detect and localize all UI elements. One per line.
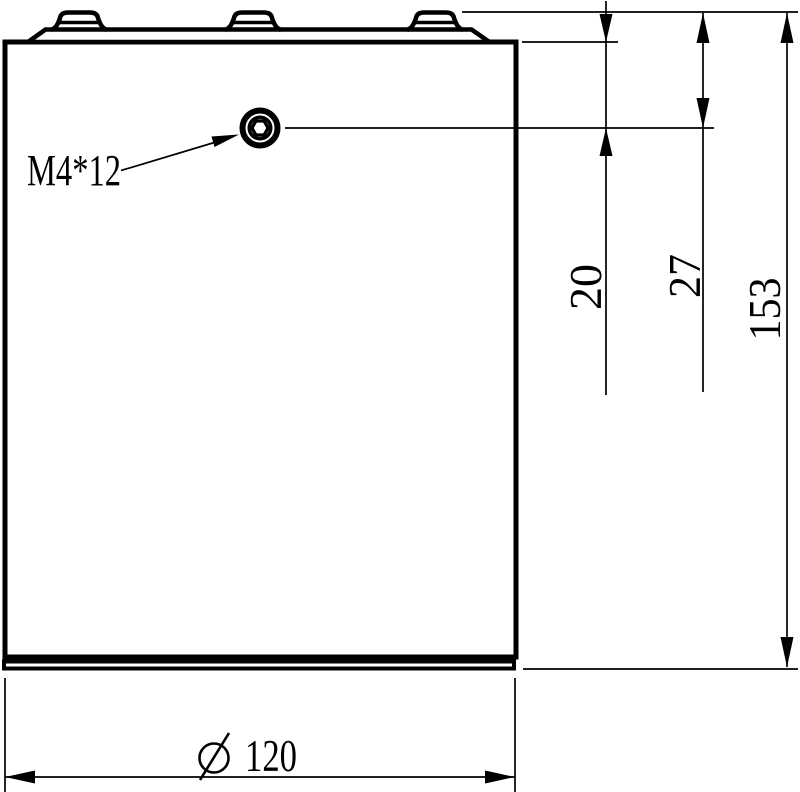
top-cap-outline [28,30,490,43]
dimension-arrowhead-icon [600,14,613,42]
diameter-symbol-icon [200,733,230,780]
dimension-arrowhead-icon [781,13,794,43]
dimension-arrowhead-icon [781,637,794,667]
dimension-153: 153 [740,13,794,667]
dimension-value: 20 [561,264,611,310]
dimension-20: 20 [561,1,613,395]
dimension-value: 120 [245,731,297,781]
socket-screw-head [243,111,278,146]
dimension-arrowhead-icon [5,771,35,784]
dimension-arrowhead-icon [485,771,515,784]
dimension-diameter-120: 120 [5,731,515,784]
dimension-27: 27 [660,13,710,392]
dimension-arrowhead-icon [697,98,710,128]
engineering-drawing: M4*12 20 27 1 [0,0,800,792]
screw-callout-label: M4*12 [27,146,121,195]
bottom-plate-outline [4,662,514,669]
dimension-arrowhead-icon [600,128,613,156]
technical-drawing-canvas: M4*12 20 27 1 [0,0,800,792]
dimension-value: 27 [660,254,710,298]
dimension-value: 153 [740,278,790,341]
dimension-arrowhead-icon [697,13,710,43]
